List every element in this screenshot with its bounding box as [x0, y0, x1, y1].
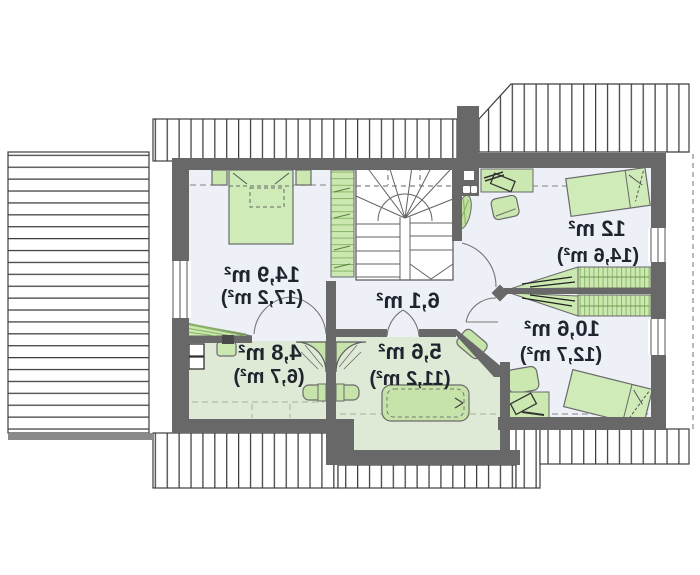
svg-text:(6,7 m²): (6,7 m²) [233, 366, 304, 388]
svg-text:6,1 m²: 6,1 m² [376, 288, 440, 313]
svg-text:10,6 m²: 10,6 m² [524, 316, 600, 341]
svg-text:12 m²: 12 m² [568, 216, 625, 241]
svg-text:(11,2 m²): (11,2 m²) [369, 368, 450, 390]
svg-text:4,8 m²: 4,8 m² [238, 340, 302, 365]
svg-text:(14,6 m²): (14,6 m²) [557, 245, 639, 267]
svg-text:5,6 m²: 5,6 m² [378, 339, 442, 364]
svg-text:(12,7 m²): (12,7 m²) [520, 344, 602, 366]
svg-text:(17,2 m²): (17,2 m²) [221, 287, 303, 309]
svg-text:14,9 m²: 14,9 m² [224, 262, 300, 287]
